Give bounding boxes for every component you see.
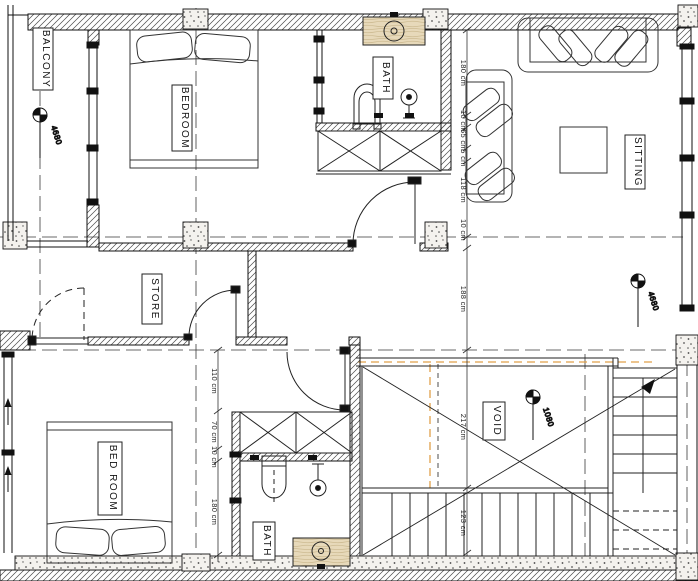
level-value-balcony: 4680 [49,124,64,146]
room-labels [33,28,645,560]
label-bed-room: BED ROOM [107,445,118,511]
label-bath-top: BATH [380,62,391,94]
label-void: VOID [491,406,502,436]
label-bedroom: BEDROOM [179,87,190,149]
dim-5: 5 cm [459,149,468,166]
dim-70: 70 cm [210,421,219,443]
dim-180b: 180 cm [210,499,219,525]
tap-bottom-1 [250,455,259,460]
dim-217: 217 cm [459,414,468,440]
dim-123: 123 cm [459,510,468,536]
label-bath-bottom: BATH [261,525,272,557]
label-sitting: SITTING [632,137,643,187]
vanity-top [363,12,425,45]
coffee-table [560,127,607,173]
level-value-void: 1080 [541,406,556,428]
level-marker-sitting: 4680 [631,274,661,327]
dim-118: 118 cm [459,177,468,203]
dim-65: 65 cm [459,129,468,151]
level-value-sitting: 4680 [646,290,661,312]
tap-top-2 [405,113,414,118]
dim-180a: 180 cm [459,60,468,86]
dim-188: 188 cm [459,286,468,312]
stair-treads-right [613,368,677,549]
tap-top-1 [374,113,383,118]
floor-plan-sheet: 4680 4680 1080 [0,0,698,581]
level-markers: 4680 4680 1080 [33,108,661,440]
vanity-bottom [293,538,350,569]
shower-bottom [310,464,326,496]
stairs-void [356,358,677,556]
toilet-bottom [262,456,286,502]
level-marker-balcony: 4680 [33,108,64,158]
fixtures [250,12,425,569]
floor-plan-drawing: 4680 4680 1080 [0,0,698,581]
stair-treads-bottom [392,493,590,556]
tap-bottom-2 [308,455,317,460]
label-store: STORE [149,278,160,320]
dim-10b: 10 cm [459,219,468,241]
level-marker-void: 1080 [526,390,556,440]
dim-10c: 10 cm [210,446,219,468]
bed-top [130,30,258,168]
label-balcony: BALCONY [40,30,51,88]
dim-110: 110 cm [210,368,219,394]
